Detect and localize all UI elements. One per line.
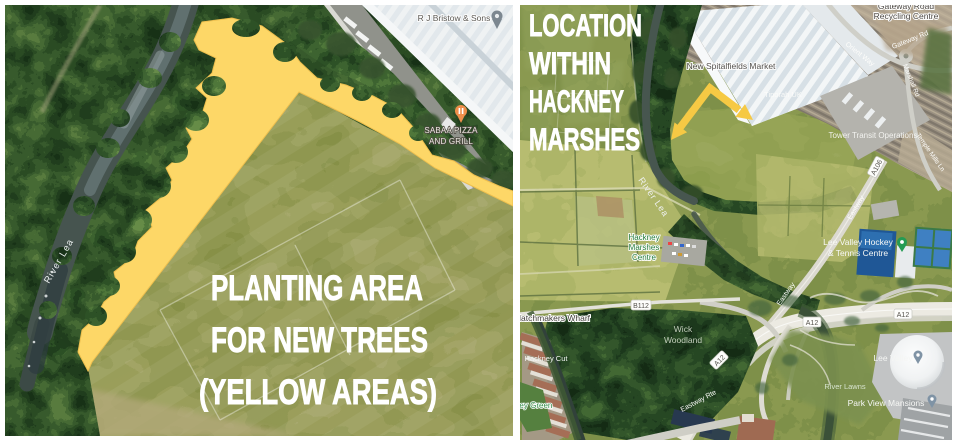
- svg-text:Hackney Cut: Hackney Cut: [525, 354, 569, 363]
- svg-text:Woodland: Woodland: [664, 335, 702, 345]
- svg-text:Park View Mansions: Park View Mansions: [848, 398, 925, 408]
- svg-text:Recycling Centre: Recycling Centre: [874, 11, 939, 21]
- svg-text:Lee Valley: Lee Valley: [873, 353, 913, 363]
- svg-text:Centre: Centre: [632, 253, 657, 262]
- svg-text:ley Green: ley Green: [518, 401, 553, 410]
- svg-text:Lee Valley Hockey: Lee Valley Hockey: [823, 237, 894, 247]
- svg-text:HACKNEY: HACKNEY: [529, 83, 624, 119]
- svg-text:(YELLOW AREAS): (YELLOW AREAS): [199, 373, 437, 412]
- svg-text:A12: A12: [897, 312, 910, 319]
- svg-text:B112: B112: [633, 303, 649, 310]
- svg-text:& Tennis Centre: & Tennis Centre: [828, 248, 889, 258]
- svg-text:LOCATION: LOCATION: [529, 7, 642, 43]
- svg-text:SABAA PIZZA: SABAA PIZZA: [424, 126, 478, 135]
- svg-text:PLANTING AREA: PLANTING AREA: [211, 269, 423, 308]
- svg-text:Matchmakers Wharf: Matchmakers Wharf: [514, 313, 591, 323]
- svg-text:WITHIN: WITHIN: [529, 45, 611, 81]
- svg-text:Tiporah UK: Tiporah UK: [764, 90, 802, 99]
- svg-text:MARSHES: MARSHES: [529, 121, 640, 157]
- svg-text:River Lawns: River Lawns: [824, 382, 866, 391]
- svg-text:FOR NEW TREES: FOR NEW TREES: [211, 321, 428, 360]
- svg-text:Tower Transit Operations: Tower Transit Operations: [829, 131, 918, 140]
- svg-text:AND GRILL: AND GRILL: [429, 137, 473, 146]
- svg-text:New Spitalfields Market: New Spitalfields Market: [687, 61, 776, 71]
- svg-text:Hackney: Hackney: [628, 233, 659, 242]
- svg-text:A12: A12: [806, 320, 819, 327]
- svg-text:R J Bristow & Sons: R J Bristow & Sons: [418, 13, 491, 23]
- svg-text:Marshes: Marshes: [629, 243, 660, 252]
- svg-text:Wick: Wick: [674, 324, 693, 334]
